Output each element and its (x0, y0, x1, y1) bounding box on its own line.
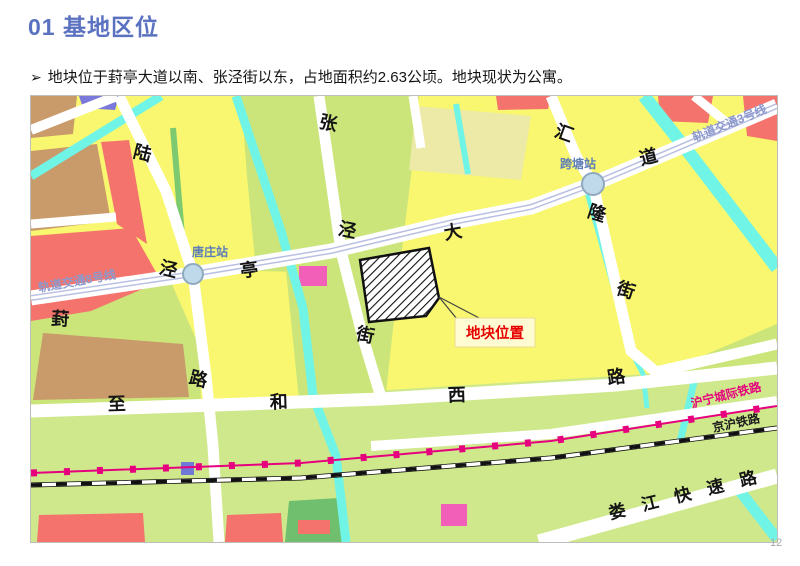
station-label: 跨塘站 (560, 156, 596, 171)
street-label: 至 (107, 394, 126, 415)
site-callout-label: 地块位置 (466, 324, 524, 342)
location-map: 地块位置 陆 泾 路 张 泾 街 汇 隆 街 葑 亭 大 道 至 和 西 路 (30, 95, 778, 543)
page-number: 12 (770, 537, 782, 549)
slide: 01 基地区位 ➢地块位于葑亭大道以南、张泾街以东，占地面积约2.63公顷。地块… (0, 0, 800, 566)
street-label: 和 (269, 392, 288, 413)
parcel (225, 513, 283, 542)
parcel (33, 333, 189, 400)
street-label: 西 (447, 385, 466, 406)
parcel (299, 266, 327, 286)
parcel (298, 520, 330, 534)
parcel (181, 462, 194, 475)
parcel (496, 96, 551, 110)
station-label: 唐庄站 (192, 244, 228, 259)
street-label: 大 (442, 220, 463, 244)
map-canvas: 地块位置 陆 泾 路 张 泾 街 汇 隆 街 葑 亭 大 道 至 和 西 路 (31, 96, 777, 542)
parcel (441, 504, 467, 526)
station-tangzhuang (183, 264, 203, 284)
station-kuatang (582, 173, 604, 195)
bullet-arrow-icon: ➢ (30, 69, 42, 85)
street-label: 葑 (51, 309, 70, 330)
bullet-text: 地块位于葑亭大道以南、张泾街以东，占地面积约2.63公顷。地块现状为公寓。 (48, 69, 572, 86)
page-title: 01 基地区位 (28, 8, 159, 42)
parcel (37, 513, 145, 542)
street-label: 亭 (239, 258, 260, 281)
site-parcel-hatched (360, 248, 439, 322)
bullet-line: ➢地块位于葑亭大道以南、张泾街以东，占地面积约2.63公顷。地块现状为公寓。 (30, 66, 572, 87)
